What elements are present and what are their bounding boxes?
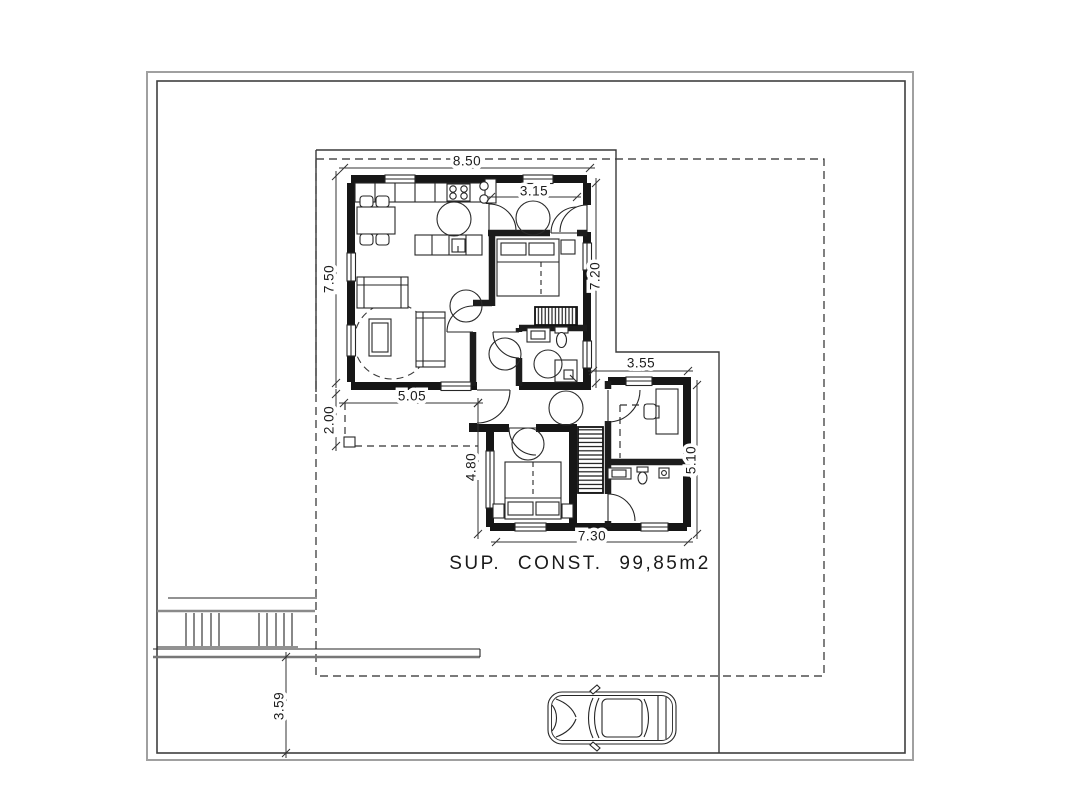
window bbox=[486, 451, 494, 508]
stove bbox=[447, 184, 470, 201]
door-arc bbox=[493, 332, 519, 358]
living-room bbox=[357, 277, 445, 367]
driveway-edge-bar bbox=[153, 649, 480, 657]
dimension-left-height: 7.50 bbox=[322, 171, 340, 388]
dimension-driveway-depth: 3.59 bbox=[272, 652, 290, 758]
toilet bbox=[555, 327, 568, 348]
desk-chair bbox=[644, 404, 656, 419]
door-arc bbox=[608, 494, 635, 521]
nightstand bbox=[562, 504, 573, 518]
nightstand bbox=[493, 504, 504, 518]
svg-text:5.10: 5.10 bbox=[684, 446, 699, 474]
clearance-circle bbox=[437, 202, 471, 236]
window bbox=[385, 175, 415, 184]
dining-chair bbox=[360, 234, 373, 245]
bed-second bbox=[505, 462, 561, 519]
setback-dashed-line bbox=[316, 159, 824, 676]
armchair bbox=[416, 312, 445, 367]
svg-text:5.05: 5.05 bbox=[398, 389, 426, 404]
car-top-view bbox=[548, 685, 676, 751]
clearance-circle bbox=[549, 391, 583, 425]
sofa bbox=[357, 277, 408, 308]
window bbox=[347, 253, 356, 281]
floor-plan-drawing: 8.50 7.50 3.15 7.20 5.05 2.00 bbox=[0, 0, 1079, 785]
terrace-column bbox=[344, 437, 355, 447]
stairs-hatch bbox=[578, 427, 603, 493]
svg-text:4.80: 4.80 bbox=[464, 453, 479, 481]
coffee-table bbox=[369, 319, 391, 356]
bathroom-1 bbox=[527, 327, 577, 382]
window bbox=[441, 382, 471, 391]
dining-chair bbox=[360, 196, 373, 207]
window bbox=[515, 523, 546, 531]
window bbox=[523, 175, 553, 184]
svg-text:8.50: 8.50 bbox=[453, 154, 481, 169]
floor-plan: 8.50 7.50 3.15 7.20 5.05 2.00 bbox=[0, 0, 1079, 785]
shower bbox=[555, 360, 577, 382]
sink bbox=[608, 468, 631, 479]
svg-text:7.20: 7.20 bbox=[588, 262, 603, 290]
bedroom-2 bbox=[493, 462, 573, 519]
bed-main bbox=[497, 239, 559, 296]
bidet bbox=[659, 468, 669, 478]
kitchen-island bbox=[415, 235, 482, 255]
dining-chair bbox=[376, 234, 389, 245]
door-arc bbox=[489, 204, 516, 231]
dimension-porch-width: 5.05 bbox=[339, 389, 483, 407]
door-arc bbox=[608, 390, 640, 422]
svg-text:3.55: 3.55 bbox=[627, 356, 655, 371]
dimension-porch-depth: 2.00 bbox=[322, 389, 340, 451]
svg-text:7.50: 7.50 bbox=[322, 265, 337, 293]
dimension-kitchen-corridor: 3.15 bbox=[487, 184, 581, 201]
clearance-circle bbox=[512, 428, 544, 460]
dimension-wing-top-width: 3.55 bbox=[588, 356, 693, 375]
window bbox=[641, 523, 668, 531]
door-arc bbox=[560, 205, 587, 232]
toilet bbox=[637, 467, 648, 484]
dining-chair bbox=[376, 196, 389, 207]
terrace-dashed-outline bbox=[344, 403, 478, 447]
svg-text:3.59: 3.59 bbox=[272, 692, 287, 720]
office bbox=[620, 389, 678, 458]
dining-table bbox=[357, 207, 395, 234]
window bbox=[583, 341, 592, 368]
area-label: SUP. CONST. 99,85m2 bbox=[449, 553, 711, 574]
svg-text:7.30: 7.30 bbox=[578, 529, 606, 544]
driveway-steps bbox=[157, 598, 317, 647]
dimension-top-width: 8.50 bbox=[339, 154, 595, 172]
svg-text:3.15: 3.15 bbox=[520, 184, 548, 199]
door-arc bbox=[477, 390, 510, 423]
door-arc bbox=[551, 207, 577, 233]
sink bbox=[527, 328, 550, 342]
nightstand bbox=[561, 240, 575, 254]
wardrobe-hatch bbox=[535, 307, 577, 325]
window bbox=[626, 377, 652, 386]
bathroom-2 bbox=[608, 467, 669, 484]
svg-text:2.00: 2.00 bbox=[322, 406, 337, 434]
window bbox=[347, 325, 356, 356]
bedroom-1 bbox=[497, 239, 577, 325]
office-dashed-closet bbox=[620, 405, 646, 458]
dimension-lower-left-height: 4.80 bbox=[464, 398, 482, 539]
dining-set bbox=[357, 196, 395, 245]
